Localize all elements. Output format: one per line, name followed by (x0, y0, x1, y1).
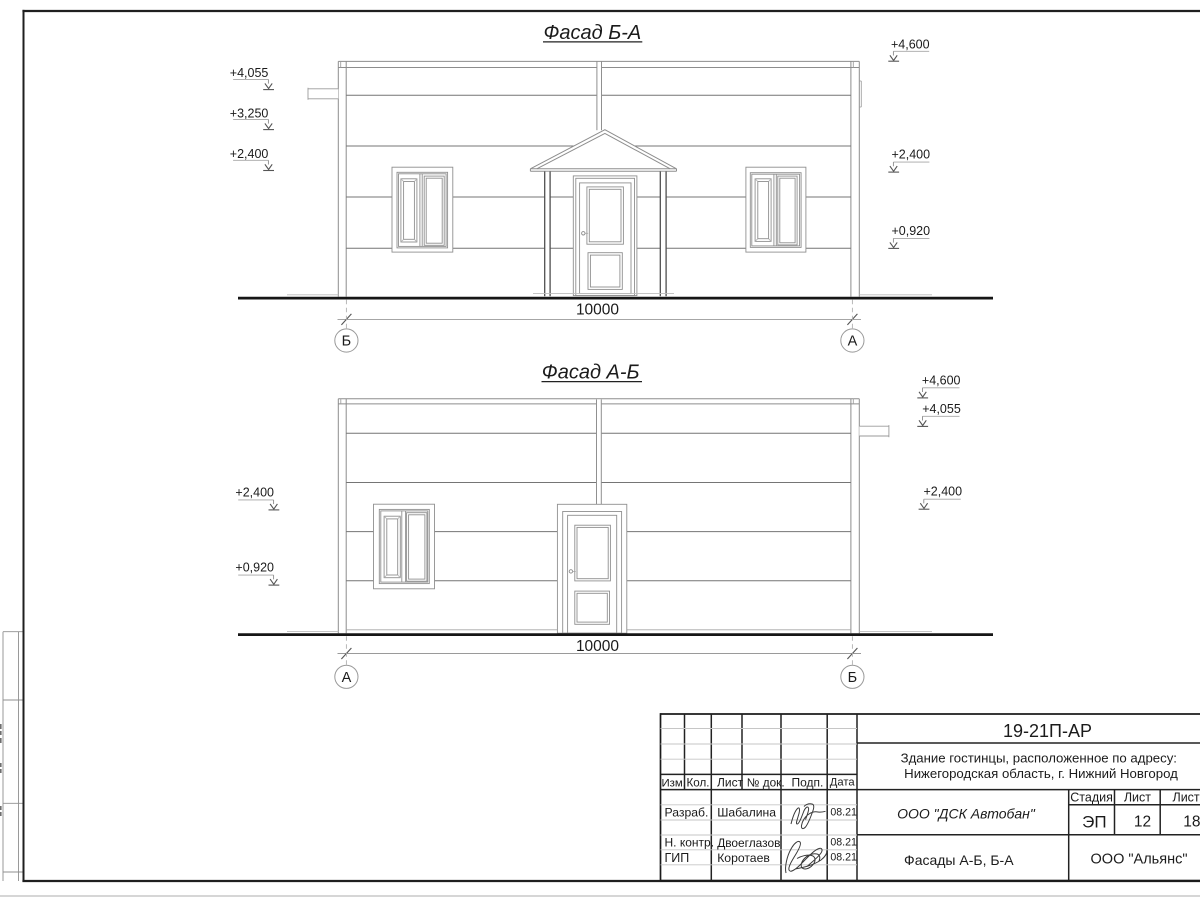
svg-text:Листов: Листов (1173, 790, 1200, 804)
svg-text:Б: Б (342, 334, 352, 350)
svg-text:Здание гостинцы, расположенное: Здание гостинцы, расположенное по адресу… (901, 750, 1177, 765)
svg-text:+4,055: +4,055 (922, 402, 961, 416)
svg-text:Нижегородская область, г. Нижн: Нижегородская область, г. Нижний Новгоро… (904, 766, 1178, 781)
svg-text:19-21П-АР: 19-21П-АР (1003, 721, 1092, 741)
svg-text:Фасад А-Б: Фасад А-Б (542, 361, 640, 383)
svg-text:№ док.: № док. (747, 775, 785, 789)
svg-text:А: А (848, 334, 858, 350)
svg-text:Фасады А-Б, Б-А: Фасады А-Б, Б-А (904, 852, 1014, 868)
svg-text:Кол.: Кол. (687, 776, 710, 789)
svg-text:Шабалина: Шабалина (717, 806, 776, 820)
svg-text:+2,400: +2,400 (924, 485, 963, 499)
svg-text:ГИП: ГИП (665, 851, 690, 865)
svg-text:Дата: Дата (830, 777, 856, 789)
svg-text:+0,920: +0,920 (892, 224, 931, 238)
svg-text:10000: 10000 (576, 302, 619, 319)
svg-text:Коротаев: Коротаев (717, 851, 770, 865)
svg-text:+3,250: +3,250 (230, 106, 269, 120)
svg-text:18: 18 (1183, 813, 1200, 830)
svg-text:12: 12 (1134, 813, 1151, 830)
svg-text:ООО "ДСК Автобан": ООО "ДСК Автобан" (897, 806, 1036, 822)
svg-text:Разраб.: Разраб. (665, 805, 709, 819)
svg-text:А: А (342, 670, 352, 686)
svg-text:Лист: Лист (717, 775, 744, 789)
svg-text:+2,400: +2,400 (892, 148, 931, 162)
svg-text:ООО "Альянс": ООО "Альянс" (1091, 851, 1188, 867)
svg-text:Н. контр.: Н. контр. (665, 836, 715, 850)
svg-text:+2,400: +2,400 (235, 486, 274, 500)
svg-text:+4,600: +4,600 (922, 373, 961, 387)
svg-text:+4,055: +4,055 (230, 66, 269, 80)
svg-text:10000: 10000 (576, 638, 619, 655)
svg-text:Лист: Лист (1124, 790, 1151, 804)
svg-text:Двоеглазов: Двоеглазов (717, 836, 780, 850)
svg-text:08.21: 08.21 (830, 851, 857, 863)
svg-text:Изм.: Изм. (662, 777, 686, 789)
svg-text:+0,920: +0,920 (235, 560, 274, 574)
svg-text:Подп.: Подп. (792, 775, 824, 789)
svg-text:08.21: 08.21 (830, 807, 857, 819)
svg-text:+4,600: +4,600 (891, 37, 930, 51)
svg-text:Фасад Б-А: Фасад Б-А (544, 22, 642, 44)
svg-text:Стадия: Стадия (1070, 790, 1113, 804)
svg-text:ЭП: ЭП (1082, 812, 1106, 831)
svg-text:Б: Б (848, 670, 858, 686)
svg-text:08.21: 08.21 (830, 837, 857, 849)
svg-text:+2,400: +2,400 (230, 147, 269, 161)
